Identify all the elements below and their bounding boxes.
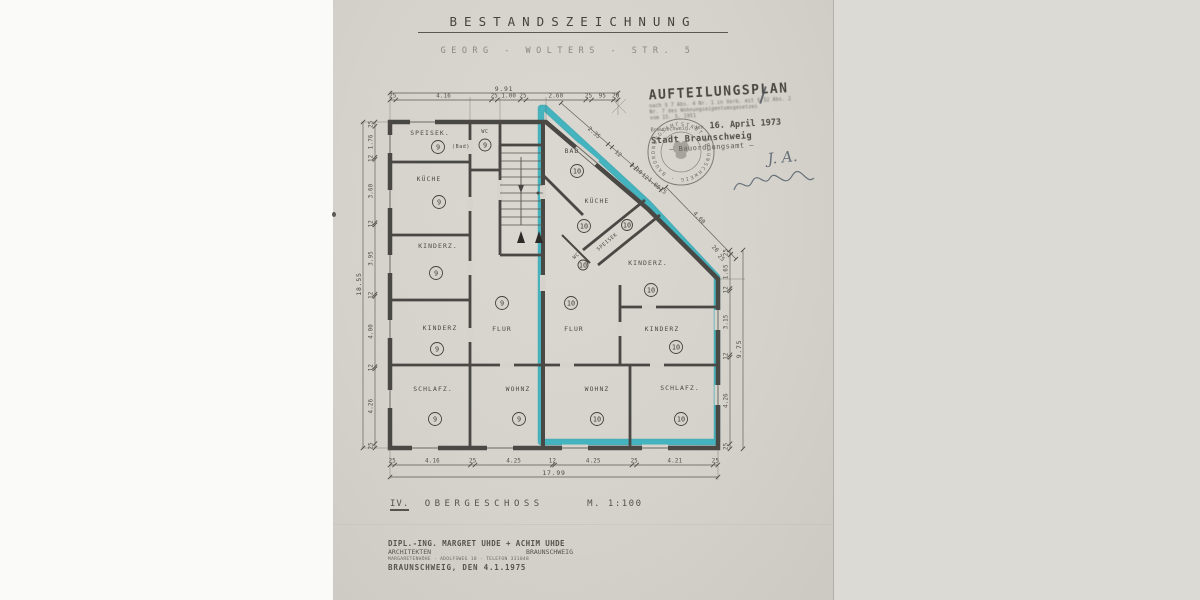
- svg-text:4.26: 4.26: [724, 393, 730, 408]
- scale-label: M. 1:100: [587, 499, 642, 509]
- room-label-kinderz-10b: KINDERZ: [645, 325, 680, 333]
- svg-text:3.15: 3.15: [724, 314, 730, 329]
- room-label-speisek-9: SPEISEK.: [410, 129, 450, 137]
- stair-direction-arrow-icon: [518, 185, 524, 193]
- architect-profession: ARCHITEKTEN: [388, 548, 431, 556]
- room-label-bad-10: BAD: [565, 147, 580, 155]
- svg-text:25: 25: [469, 459, 477, 465]
- svg-text:25: 25: [389, 94, 397, 100]
- svg-text:4.26: 4.26: [369, 398, 375, 413]
- svg-text:25: 25: [491, 94, 499, 100]
- svg-text:9: 9: [433, 416, 437, 424]
- svg-text:12: 12: [369, 292, 375, 299]
- svg-text:25: 25: [658, 187, 668, 197]
- svg-text:25: 25: [631, 459, 639, 465]
- svg-text:4.21: 4.21: [668, 459, 683, 465]
- floor-caption: IV. OBERGESCHOSS M. 1:100: [390, 499, 643, 509]
- room-label-kinderz-9a: KINDERZ.: [418, 242, 458, 250]
- svg-text:20: 20: [710, 245, 720, 255]
- svg-text:9: 9: [517, 416, 521, 424]
- dim-labels-left: 18.55 25 1.76 12 3.60 12 3.95 12 4.00 12…: [355, 120, 375, 449]
- svg-text:25: 25: [712, 459, 720, 465]
- svg-text:10: 10: [567, 300, 575, 308]
- room-label-wohnz-9: WOHNZ: [506, 385, 531, 393]
- svg-text:25: 25: [724, 249, 730, 257]
- svg-text:9: 9: [435, 346, 439, 354]
- svg-text:95: 95: [599, 94, 607, 100]
- floor-numeral: IV.: [390, 499, 409, 511]
- svg-text:10: 10: [647, 287, 655, 295]
- room-number-bad-10: 10: [571, 165, 584, 178]
- room-number-kinderz-9a: 9: [430, 267, 443, 280]
- room-number-speisek-9: 9: [432, 141, 445, 154]
- svg-text:2.60: 2.60: [549, 94, 564, 100]
- svg-text:25: 25: [389, 459, 397, 465]
- svg-text:12: 12: [369, 220, 375, 227]
- svg-text:1.00: 1.00: [501, 94, 516, 100]
- room-number-speisek-10: 10: [622, 220, 633, 231]
- svg-text:2.35: 2.35: [586, 126, 601, 140]
- drawing-title: BESTANDSZEICHNUNG: [418, 14, 728, 33]
- svg-text:4.00: 4.00: [369, 324, 375, 339]
- svg-text:12: 12: [369, 155, 375, 162]
- room-number-wc-10: 10: [578, 260, 588, 270]
- walls: [390, 122, 718, 448]
- scanned-floor-plan-page: BESTANDSZEICHNUNG GEORG - WOLTERS - STR.…: [0, 0, 1200, 600]
- svg-text:9: 9: [483, 142, 487, 150]
- staircase: [500, 153, 543, 225]
- room-label-wc-9: WC: [481, 129, 488, 135]
- floor-plan-drawing: 9.91 25 4.16 25 1.00 25 2.60 25 95 20 18…: [350, 85, 750, 505]
- svg-text:9: 9: [500, 300, 504, 308]
- room-label-flur-9: FLUR: [492, 325, 512, 333]
- svg-text:12: 12: [724, 286, 730, 293]
- architect-names: DIPL.-ING. MARGRET UHDE + ACHIM UHDE: [388, 539, 573, 548]
- svg-text:1.76: 1.76: [369, 134, 375, 149]
- room-label-schlafz-10: SCHLAFZ.: [660, 384, 700, 392]
- room-label-flur-10: FLUR: [564, 325, 584, 333]
- architect-address: MARGARETENHÖHE · ADOLFSWEG 18 · TELEFON …: [388, 557, 573, 563]
- svg-text:4.25: 4.25: [586, 459, 601, 465]
- architect-stamp: DIPL.-ING. MARGRET UHDE + ACHIM UHDE ARC…: [388, 539, 573, 573]
- room-number-wc-9: 9: [479, 139, 491, 151]
- svg-text:12: 12: [724, 352, 730, 359]
- architect-city: BRAUNSCHWEIG: [526, 548, 573, 556]
- room-label-kinderz-10a: KINDERZ.: [628, 259, 668, 267]
- svg-text:4.25: 4.25: [506, 459, 521, 465]
- svg-text:25: 25: [519, 94, 527, 100]
- paper-crease: [333, 524, 833, 525]
- svg-text:12: 12: [369, 364, 375, 371]
- svg-text:25: 25: [369, 120, 375, 128]
- svg-text:12: 12: [549, 459, 556, 465]
- room-label-kueche-9: KÜCHE: [417, 174, 442, 183]
- svg-text:10: 10: [573, 168, 581, 176]
- dim-labels-bottom: 17.99 25 4.16 25 4.25 12 4.25 25 4.21 25: [389, 459, 720, 478]
- svg-text:10: 10: [623, 222, 631, 230]
- svg-text:10: 10: [593, 416, 601, 424]
- room-number-kinderz-9b: 9: [431, 343, 444, 356]
- svg-text:1.65: 1.65: [724, 264, 730, 279]
- room-label-schlafz-9: SCHLAFZ.: [413, 385, 453, 393]
- svg-text:25: 25: [585, 94, 593, 100]
- room-number-kueche-10: 10: [578, 220, 591, 233]
- handwritten-initials: J. A.: [764, 147, 799, 168]
- svg-text:9: 9: [436, 144, 440, 152]
- floor-name: OBERGESCHOSS: [425, 499, 544, 509]
- room-number-schlafz-10: 10: [675, 413, 688, 426]
- svg-text:9.75: 9.75: [735, 340, 743, 359]
- street-address: GEORG - WOLTERS - STR. 5: [398, 46, 738, 56]
- entrance-arrows-icon: [517, 231, 543, 243]
- room-number-kueche-9: 9: [433, 196, 446, 209]
- svg-text:17.99: 17.99: [542, 469, 565, 477]
- svg-text:4.60: 4.60: [691, 211, 706, 226]
- svg-text:10: 10: [677, 416, 685, 424]
- room-label-wohnz-10: WOHNZ: [585, 385, 610, 393]
- svg-text:9: 9: [437, 199, 441, 207]
- svg-text:3.60: 3.60: [369, 183, 375, 198]
- page-right-fold: [833, 0, 1200, 600]
- svg-text:10: 10: [672, 344, 680, 352]
- scan-speck: [332, 212, 336, 217]
- svg-text:9.91: 9.91: [495, 85, 514, 93]
- svg-text:3.95: 3.95: [369, 251, 375, 266]
- room-number-kinderz-10a: 10: [645, 284, 658, 297]
- svg-text:4.16: 4.16: [436, 94, 451, 100]
- dim-labels-right: 9.75 25 1.65 12 3.15 12 4.26 25: [724, 249, 744, 450]
- svg-text:25: 25: [369, 442, 375, 450]
- outer-wall: [390, 122, 718, 448]
- svg-text:25: 25: [724, 442, 730, 450]
- svg-text:20: 20: [612, 94, 620, 100]
- room-number-wohnz-10: 10: [591, 413, 604, 426]
- svg-text:18.55: 18.55: [355, 272, 363, 295]
- svg-text:4.16: 4.16: [425, 459, 440, 465]
- svg-text:10: 10: [580, 223, 588, 231]
- door-openings: [467, 140, 664, 368]
- svg-text:9: 9: [434, 270, 438, 278]
- windows: [387, 119, 722, 452]
- interior-walls: [390, 122, 718, 448]
- svg-text:12: 12: [613, 150, 623, 159]
- drawing-date: BRAUNSCHWEIG, DEN 4.1.1975: [388, 563, 573, 572]
- page-left-margin: [0, 0, 333, 600]
- room-number-kinderz-10b: 10: [670, 341, 683, 354]
- room-label-kueche-10: KÜCHE: [585, 196, 610, 205]
- room-number-wohnz-9: 9: [513, 413, 526, 426]
- room-label-kinderz-9b: KINDERZ: [423, 324, 458, 332]
- dim-labels-top: 9.91 25 4.16 25 1.00 25 2.60 25 95 20: [389, 85, 619, 100]
- room-label-bad-suffix-9: (Bad): [452, 144, 470, 150]
- room-number-schlafz-9: 9: [429, 413, 442, 426]
- room-number-flur-9: 9: [496, 297, 509, 310]
- room-number-flur-10: 10: [565, 297, 578, 310]
- svg-text:10: 10: [579, 262, 587, 270]
- architect-profession-row: ARCHITEKTEN BRAUNSCHWEIG: [388, 548, 573, 556]
